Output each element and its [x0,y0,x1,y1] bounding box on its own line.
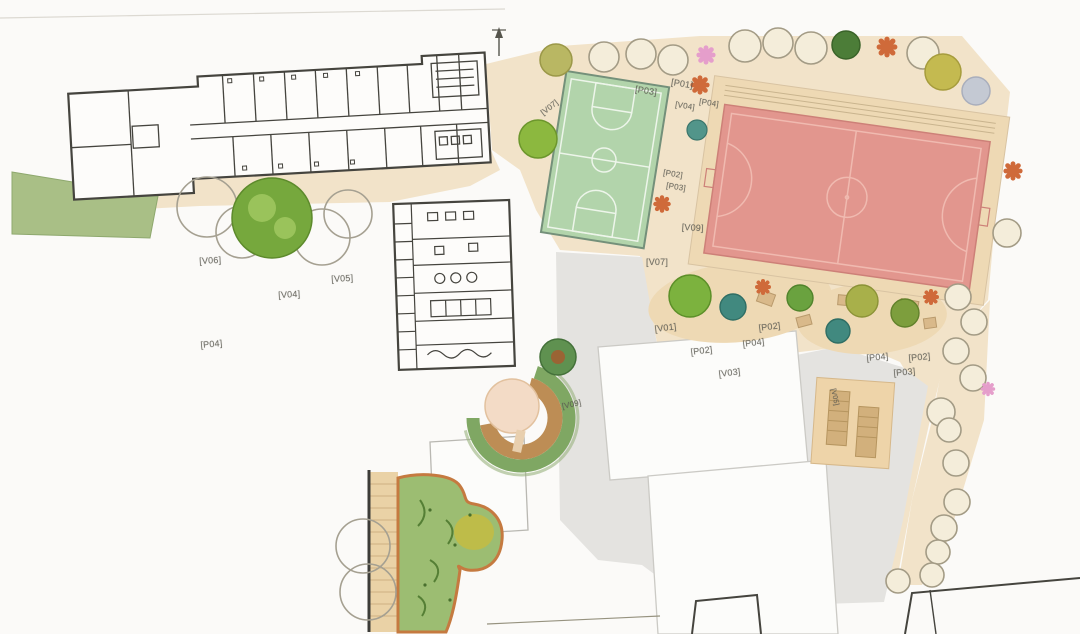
tree-icon [687,120,707,140]
tree-icon [540,44,572,76]
sun-deck [811,377,895,468]
tree-icon [846,285,878,317]
tree-icon [925,54,961,90]
lower-building [393,200,515,370]
tree-icon [669,275,711,317]
deck-surface [811,377,895,468]
flower-tree-icon [757,281,769,293]
tree-highlight [248,194,276,222]
flower-tree-icon [1006,164,1020,178]
tree-trunk [551,350,565,364]
big-tree [232,178,312,258]
garden-yellow-patch [454,514,494,550]
tree-highlight [274,217,296,239]
flower-tree-icon [699,48,713,62]
flower-tree-icon [925,291,937,303]
flower-tree-icon [879,39,895,55]
tree-icon [832,31,860,59]
tree-icon [720,294,746,320]
building-footprint [648,460,838,634]
tree-icon [232,178,312,258]
tree-icon [962,77,990,105]
tree-icon [891,299,919,327]
flower-tree-icon [983,384,994,395]
site-plan: [V06][V04][V05][P04][V07][P03][P01][V04]… [0,0,1080,634]
flower-tree-icon [693,78,707,92]
flower-tree-icon [655,197,668,210]
amphitheater-stage [485,379,539,433]
tree-icon [519,120,557,158]
tree-icon [993,219,1021,247]
building-footprint [598,331,808,480]
sports-field [688,76,1010,306]
site-plan-drawing [0,0,1080,634]
tree-icon [787,285,813,311]
tree-icon [826,319,850,343]
